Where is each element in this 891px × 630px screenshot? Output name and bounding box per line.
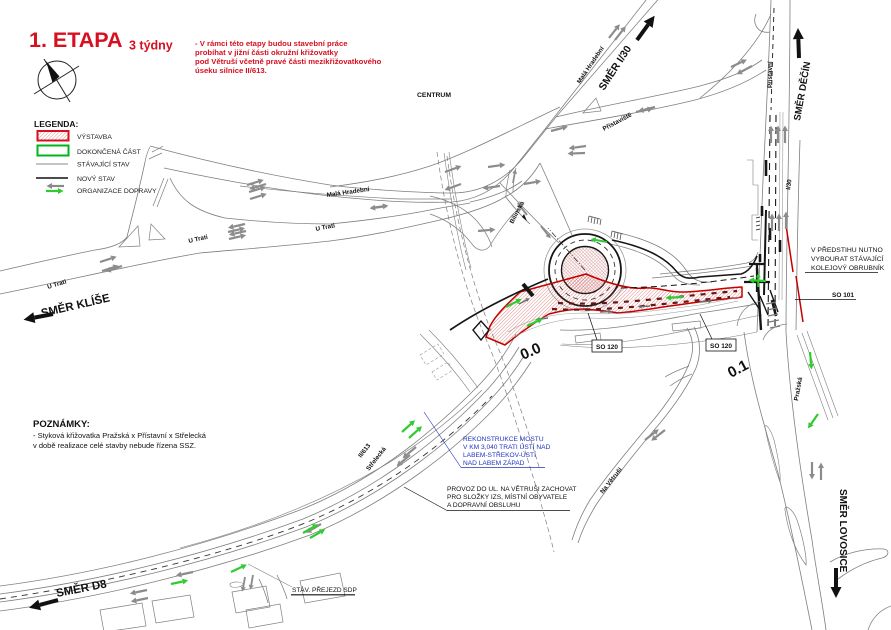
svg-text:3 týdny: 3 týdny bbox=[129, 39, 173, 53]
svg-text:VYBOURAT STÁVAJÍCÍ: VYBOURAT STÁVAJÍCÍ bbox=[811, 254, 884, 263]
svg-text:NOVÝ STAV: NOVÝ STAV bbox=[77, 174, 115, 183]
svg-text:NAD LABEM ZÁPAD: NAD LABEM ZÁPAD bbox=[463, 458, 525, 467]
svg-text:pod Větruší včetně pravé části: pod Větruší včetně pravé části mezikřižo… bbox=[195, 57, 382, 66]
svg-text:SO 101: SO 101 bbox=[832, 292, 854, 299]
svg-text:STÁV. PŘEJEZD SDP: STÁV. PŘEJEZD SDP bbox=[292, 585, 357, 594]
svg-text:LABEM-STŘEKOV-ÚSTÍ: LABEM-STŘEKOV-ÚSTÍ bbox=[463, 450, 536, 459]
svg-text:LEGENDA:: LEGENDA: bbox=[34, 119, 79, 129]
svg-text:PROVOZ DO UL. NA VĚTRUŠI ZACHO: PROVOZ DO UL. NA VĚTRUŠI ZACHOVAT bbox=[447, 484, 576, 493]
svg-text:probíhat v jižní části okružní: probíhat v jižní části okružní křižovatk… bbox=[195, 48, 339, 57]
svg-text:CENTRUM: CENTRUM bbox=[417, 92, 451, 99]
svg-text:v době realizace celé stavby n: v době realizace celé stavby nebude říze… bbox=[33, 441, 196, 450]
svg-text:PRO SLOŽKY IZS, MÍSTNÍ OBYVATE: PRO SLOŽKY IZS, MÍSTNÍ OBYVATELE bbox=[447, 492, 568, 501]
svg-text:SMĚR LOVOSICE: SMĚR LOVOSICE bbox=[837, 489, 850, 573]
svg-text:ORGANIZACE DOPRAVY: ORGANIZACE DOPRAVY bbox=[77, 188, 157, 195]
svg-text:- Styková křižovatka Pražská x: - Styková křižovatka Pražská x Přístavní… bbox=[33, 431, 207, 440]
svg-text:SO 120: SO 120 bbox=[710, 343, 732, 350]
svg-text:úseku silnice II/613.: úseku silnice II/613. bbox=[195, 66, 267, 75]
svg-text:DOKONČENÁ ČÁST: DOKONČENÁ ČÁST bbox=[77, 147, 141, 156]
svg-text:SO 120: SO 120 bbox=[596, 344, 618, 351]
svg-text:REKONSTRUKCE MOSTU: REKONSTRUKCE MOSTU bbox=[463, 436, 544, 443]
svg-text:- V rámci této etapy budou sta: - V rámci této etapy budou stavební prác… bbox=[195, 39, 348, 48]
svg-text:VÝSTAVBA: VÝSTAVBA bbox=[77, 132, 112, 141]
svg-text:A DOPRAVNÍ OBSLUHU: A DOPRAVNÍ OBSLUHU bbox=[447, 500, 521, 509]
svg-text:STÁVAJÍCÍ STAV: STÁVAJÍCÍ STAV bbox=[77, 160, 130, 169]
svg-text:1. ETAPA: 1. ETAPA bbox=[29, 28, 123, 52]
svg-text:KOLEJOVÝ OBRUBNÍK: KOLEJOVÝ OBRUBNÍK bbox=[811, 263, 885, 272]
svg-text:POZNÁMKY:: POZNÁMKY: bbox=[33, 419, 90, 430]
svg-text:V PŘEDSTIHU NUTNO: V PŘEDSTIHU NUTNO bbox=[811, 245, 883, 254]
svg-text:V KM 3,040 TRATI ÚSTÍ NAD: V KM 3,040 TRATI ÚSTÍ NAD bbox=[463, 442, 551, 451]
svg-text:Přístavní: Přístavní bbox=[767, 61, 774, 88]
